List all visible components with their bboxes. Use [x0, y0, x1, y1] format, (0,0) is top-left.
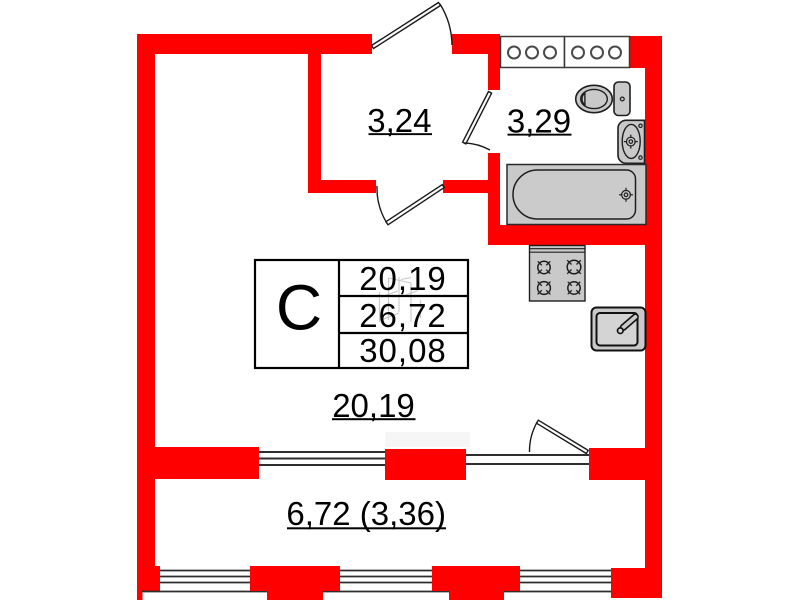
svg-text:26,72: 26,72	[359, 297, 447, 334]
svg-text:30,08: 30,08	[359, 332, 447, 369]
svg-text:6,72 (3,36): 6,72 (3,36)	[286, 495, 446, 532]
svg-text:20,19: 20,19	[359, 260, 447, 297]
svg-text:С: С	[276, 272, 322, 344]
